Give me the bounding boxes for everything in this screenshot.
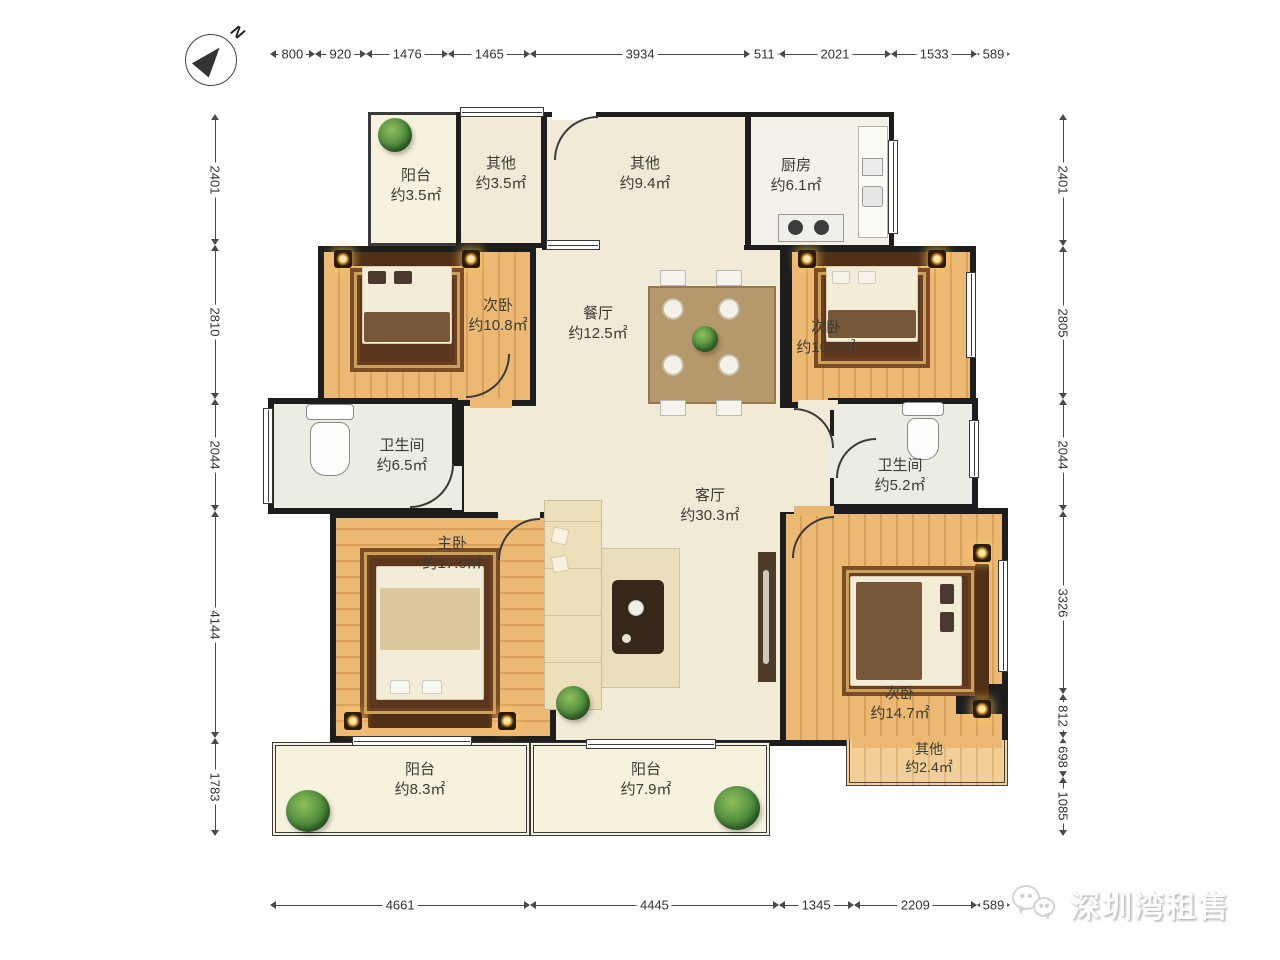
dimension-segment: 2805 (1054, 246, 1072, 400)
toilet-tank (306, 404, 354, 420)
toilet-icon (310, 422, 350, 476)
dimension-segment: 589 (977, 45, 1010, 63)
room-label-bath-right: 卫生间约5.2㎡ (854, 456, 946, 495)
sink-icon (862, 186, 883, 207)
room-label-hall: 其他约9.4㎡ (601, 154, 689, 193)
plant-icon (692, 326, 718, 352)
watermark-text: 深圳湾租售 (1070, 882, 1230, 926)
pillow (368, 271, 386, 284)
room-label-bedroom-right: 次卧约10.0㎡ (772, 318, 880, 357)
door-gap (794, 506, 834, 516)
pillow (390, 680, 410, 694)
compass-north-label: N (227, 22, 247, 43)
dimension-segment: 2401 (1054, 114, 1072, 246)
watermark: 深圳湾租售 (1012, 882, 1230, 926)
wechat-icon (1012, 883, 1060, 925)
pillow (832, 271, 850, 284)
dimension-rail-right: 2401 2805 2044 3326 812 698 1085 (1054, 114, 1072, 836)
dimension-segment: 1476 (366, 45, 448, 63)
plant-icon (556, 686, 590, 720)
door-gap (452, 466, 462, 510)
room-label-balcony-bottomleft: 阳台约8.3㎡ (374, 760, 466, 799)
pillow (394, 271, 412, 284)
dimension-segment: 4445 (530, 896, 778, 914)
pillow (940, 612, 954, 632)
bedside-lamp-icon (928, 250, 946, 268)
room-label-living: 客厅约30.3㎡ (658, 486, 762, 525)
bed-headboard (816, 252, 928, 266)
pillow (422, 680, 442, 694)
bedside-lamp-icon (462, 250, 480, 268)
toilet-icon (907, 418, 939, 460)
dimension-segment: 511 (750, 45, 779, 63)
dining-chair (660, 400, 686, 416)
room-label-dining: 餐厅约12.5㎡ (552, 304, 644, 343)
bed-headboard (368, 714, 492, 728)
plate-icon (718, 354, 740, 376)
dimension-segment: 1465 (448, 45, 530, 63)
tv-icon (763, 570, 769, 664)
plate-icon (628, 600, 644, 616)
bed-headboard (975, 564, 989, 698)
room-label-other-bottomright: 其他约2.4㎡ (882, 740, 976, 776)
bedside-lamp-icon (973, 544, 991, 562)
window-icon (546, 240, 600, 250)
stove-burner-icon (814, 220, 829, 235)
window-icon (969, 420, 979, 478)
dimension-segment: 920 (315, 45, 366, 63)
window-icon (888, 140, 898, 234)
dimension-segment: 698 (1054, 738, 1072, 776)
bed-headboard (352, 252, 462, 266)
bedside-lamp-icon (344, 712, 362, 730)
bedside-lamp-icon (973, 700, 991, 718)
dimension-rail-left: 2401 2810 2044 4144 1783 (206, 114, 224, 836)
room-label-bedroom-bottomright: 次卧约14.7㎡ (846, 684, 954, 723)
dimension-segment: 800 (270, 45, 315, 63)
dimension-segment: 2209 (854, 896, 977, 914)
room-label-bath-left: 卫生间约6.5㎡ (356, 436, 448, 475)
plant-icon (378, 118, 412, 152)
dimension-segment: 812 (1054, 694, 1072, 739)
dimension-segment: 4661 (270, 896, 530, 914)
dimension-segment: 3326 (1054, 511, 1072, 693)
plant-icon (286, 790, 330, 832)
toilet-tank (902, 402, 944, 416)
dimension-segment: 589 (977, 896, 1010, 914)
dimension-segment: 2044 (1054, 399, 1072, 511)
sofa-pillow (551, 555, 570, 574)
room-label-balcony-bottomcenter: 阳台约7.9㎡ (600, 760, 692, 799)
floorplan-canvas: N 800 920 1476 1465 3934 511 2021 1533 5… (0, 0, 1280, 960)
dining-chair (716, 270, 742, 286)
window-icon (966, 272, 976, 358)
room-label-other-top: 其他约3.5㎡ (458, 154, 544, 193)
door-gap (470, 398, 512, 408)
pillow (940, 584, 954, 604)
bedside-lamp-icon (498, 712, 516, 730)
window-icon (460, 107, 544, 117)
room-label-bedroom-left: 次卧约10.8㎡ (442, 296, 554, 335)
dimension-rail-bottom: 4661 4445 1345 2209 589 (270, 896, 1010, 914)
sliding-door-icon (586, 739, 716, 749)
dimension-rail-top: 800 920 1476 1465 3934 511 2021 1533 589 (270, 45, 1010, 63)
dimension-segment: 1783 (206, 738, 224, 836)
dimension-segment: 2044 (206, 399, 224, 511)
bedside-lamp-icon (798, 250, 816, 268)
stove-burner-icon (788, 220, 803, 235)
compass: N (183, 28, 247, 92)
dimension-segment: 2401 (206, 114, 224, 245)
bed-blanket (856, 582, 922, 680)
kitchen-counter (858, 126, 888, 238)
coffee-table (612, 580, 664, 654)
window-icon (998, 560, 1008, 672)
dimension-segment: 1345 (779, 896, 854, 914)
decor-dot (622, 634, 631, 643)
room-label-kitchen: 厨房约6.1㎡ (750, 156, 842, 195)
plate-icon (662, 298, 684, 320)
plate-icon (718, 298, 740, 320)
sliding-door-icon (352, 736, 472, 746)
window-icon (263, 408, 273, 504)
room-label-balcony-top: 阳台约3.5㎡ (378, 166, 454, 205)
dimension-segment: 1533 (891, 45, 977, 63)
dimension-segment: 3934 (530, 45, 750, 63)
pillow (858, 271, 876, 284)
bed-blanket (364, 312, 450, 342)
plant-icon (714, 786, 760, 830)
room-label-master: 主卧约17.6㎡ (396, 534, 508, 573)
dimension-segment: 2021 (779, 45, 892, 63)
sink-icon (862, 158, 883, 176)
bed-blanket (380, 588, 480, 650)
dimension-segment: 4144 (206, 511, 224, 738)
dining-chair (716, 400, 742, 416)
dining-chair (660, 270, 686, 286)
dimension-segment: 1085 (1054, 777, 1072, 836)
bedside-lamp-icon (334, 250, 352, 268)
dimension-segment: 2810 (206, 245, 224, 399)
plate-icon (662, 354, 684, 376)
